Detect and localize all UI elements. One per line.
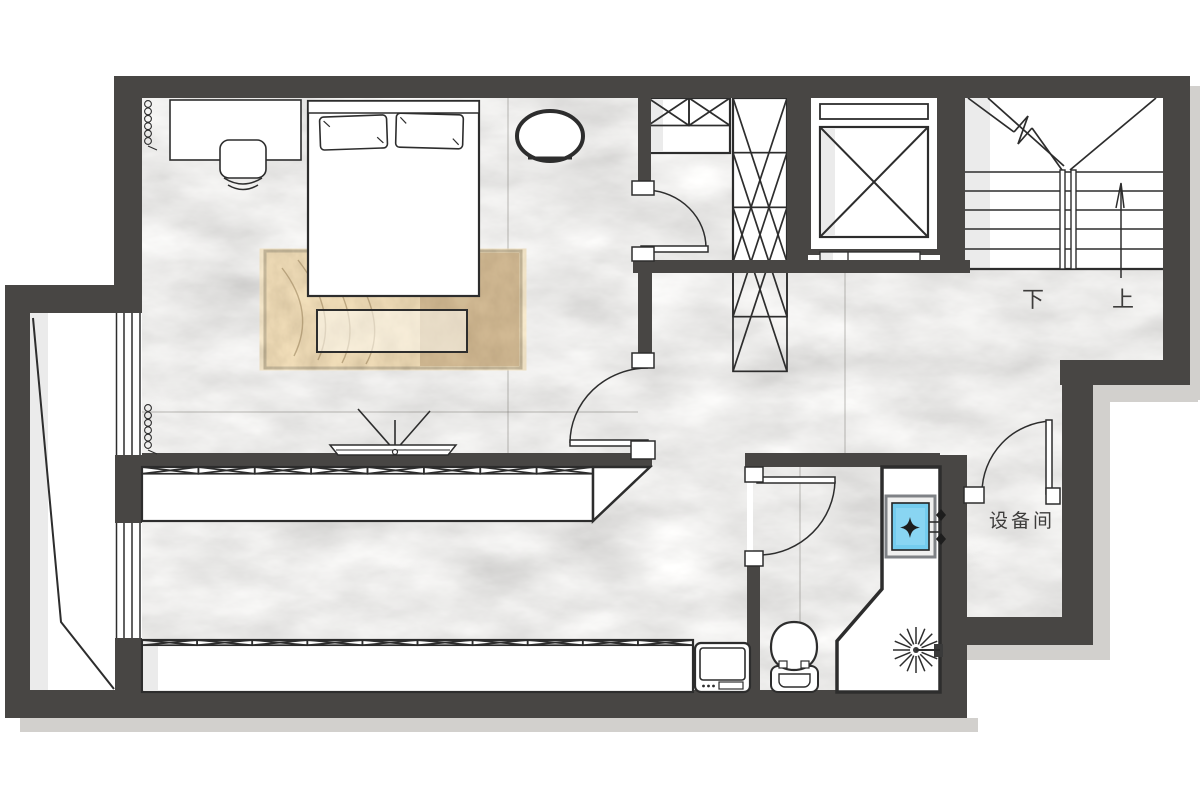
stairs (965, 93, 1163, 278)
wall (1060, 360, 1190, 385)
elevator (808, 93, 940, 270)
bay-window-room (30, 313, 115, 690)
window-left-lower (115, 523, 142, 638)
wall (114, 76, 142, 285)
floor-plan: 下 上 设备间 (0, 0, 1200, 800)
wall (114, 76, 1190, 98)
wall (940, 455, 967, 718)
toilet (771, 622, 818, 692)
wall (745, 453, 940, 467)
wall (638, 98, 651, 181)
washing-machine (695, 643, 750, 692)
wall (115, 638, 142, 692)
pouf (517, 111, 583, 161)
wardrobe-middle (142, 467, 650, 521)
wall (787, 98, 808, 262)
label-stair-up: 上 (1103, 282, 1143, 314)
wall (638, 272, 652, 355)
floor-plan-drawing (0, 0, 1200, 800)
wall (1163, 76, 1190, 385)
bed-bench (317, 310, 467, 352)
wall (5, 285, 30, 718)
wall (5, 690, 967, 718)
window-left-upper (115, 313, 142, 455)
wall (633, 260, 970, 273)
wardrobe-bottom (142, 640, 693, 692)
label-equipment-room: 设备间 (962, 506, 1082, 533)
wall (940, 98, 965, 272)
label-stair-down: 下 (1013, 282, 1053, 314)
bed (308, 101, 479, 296)
